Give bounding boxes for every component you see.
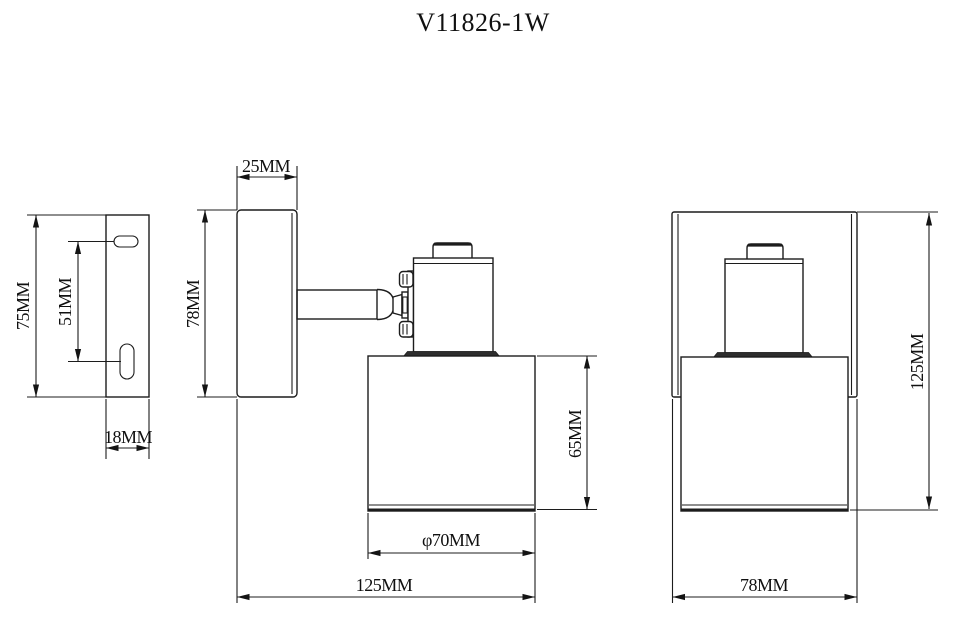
arrowhead <box>202 210 208 223</box>
bracket-side-view: 75MM 51MM 18MM <box>13 215 152 459</box>
lamp-shade <box>681 357 848 511</box>
lamp-head-body <box>414 258 494 352</box>
dimension-label-shade-diameter: φ70MM <box>422 530 480 550</box>
lamp-shade <box>368 356 535 511</box>
bracket-outline <box>106 215 149 397</box>
dimension-label-plate-height: 78MM <box>183 280 203 329</box>
arrowhead <box>584 497 590 510</box>
arrowhead <box>368 550 381 556</box>
drawing-title: V11826-1W <box>416 8 550 37</box>
arrowhead <box>75 349 81 362</box>
thumbscrew-top <box>400 272 414 288</box>
arrowhead <box>237 594 250 600</box>
arrowhead <box>926 497 932 510</box>
swivel-arm <box>297 290 377 319</box>
dimension-label-bracket-height: 75MM <box>13 282 33 331</box>
lamp-head-body <box>725 259 803 353</box>
arrowhead <box>33 215 39 228</box>
arrowhead <box>523 594 536 600</box>
arrowhead <box>926 213 932 226</box>
arrowhead <box>673 594 686 600</box>
arm-end-cap <box>377 290 394 320</box>
arrowhead <box>523 550 536 556</box>
joint-neck <box>393 295 402 316</box>
dimension-label-overall-width: 125MM <box>356 575 413 595</box>
thumbscrew-bottom <box>400 322 414 338</box>
arrowhead <box>75 242 81 255</box>
dimension-label-plate-depth: 25MM <box>242 156 291 176</box>
lamp-side-view: 25MM 78MM <box>183 156 597 603</box>
technical-drawing-page: V11826-1W 75MM 51MM 18MM <box>0 0 960 617</box>
dimension-label-plate-width: 78MM <box>740 575 789 595</box>
lamp-front-view: 125MM 78MM <box>672 212 938 603</box>
arrowhead <box>584 356 590 369</box>
dimension-label-shade-height: 65MM <box>565 410 585 459</box>
dimension-label-slot-spacing: 51MM <box>55 278 75 327</box>
dimension-label-overall-height: 125MM <box>907 333 927 390</box>
dimension-label-bracket-depth: 18MM <box>104 427 153 447</box>
arrowhead <box>202 385 208 398</box>
technical-drawing-canvas: V11826-1W 75MM 51MM 18MM <box>0 0 960 617</box>
arrowhead <box>33 385 39 398</box>
arrowhead <box>845 594 858 600</box>
wall-plate-profile <box>237 210 297 397</box>
